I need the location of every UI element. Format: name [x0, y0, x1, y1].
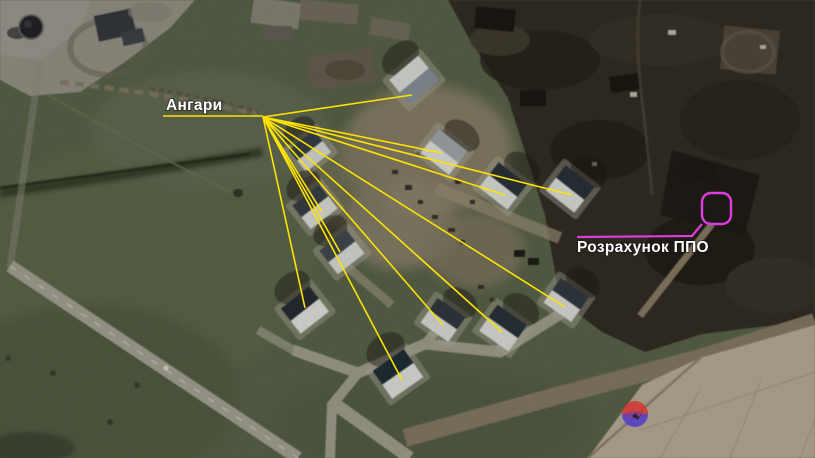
air-defense-label: Розрахунок ППО — [577, 239, 709, 256]
grain-overlay — [0, 0, 815, 458]
terrain — [0, 0, 815, 458]
hangars-label: Ангари — [166, 97, 222, 114]
watermark-logo — [622, 401, 648, 427]
annotated-satellite-view: Ангари Розрахунок ППО — [0, 0, 815, 458]
satellite-image: Ангари Розрахунок ППО — [0, 0, 815, 458]
